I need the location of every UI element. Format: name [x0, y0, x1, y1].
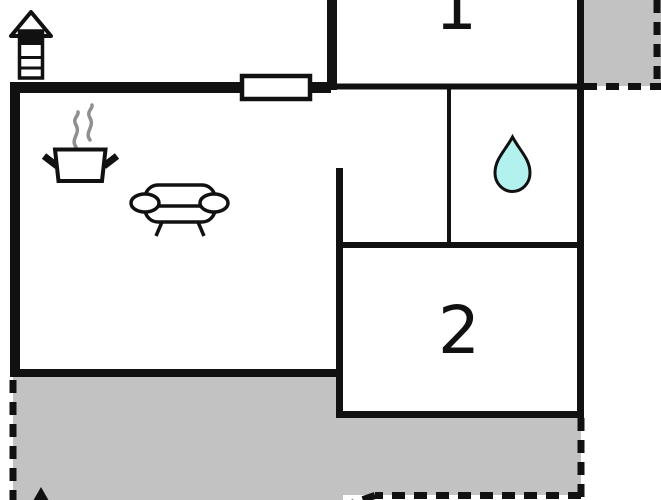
chimney-icon — [11, 12, 51, 78]
walls — [10, 0, 584, 418]
cooking-pot-icon — [44, 105, 117, 181]
floor-plan: 1 2 — [0, 0, 661, 500]
room-1-label: 1 — [435, 0, 477, 45]
room-2-label: 2 — [438, 292, 480, 369]
steam-line-right — [88, 105, 92, 140]
terrace-bottom-right — [336, 418, 581, 495]
window-symbol — [242, 76, 310, 99]
room-labels: 1 2 — [435, 0, 480, 369]
terrace-top-right — [584, 0, 661, 86]
terrace-bottom-left — [13, 377, 343, 500]
steam-line-left — [74, 112, 78, 147]
dashed-border-bottom-diagonal — [350, 496, 375, 500]
water-drop-icon — [495, 137, 530, 192]
sofa-icon — [131, 185, 228, 236]
